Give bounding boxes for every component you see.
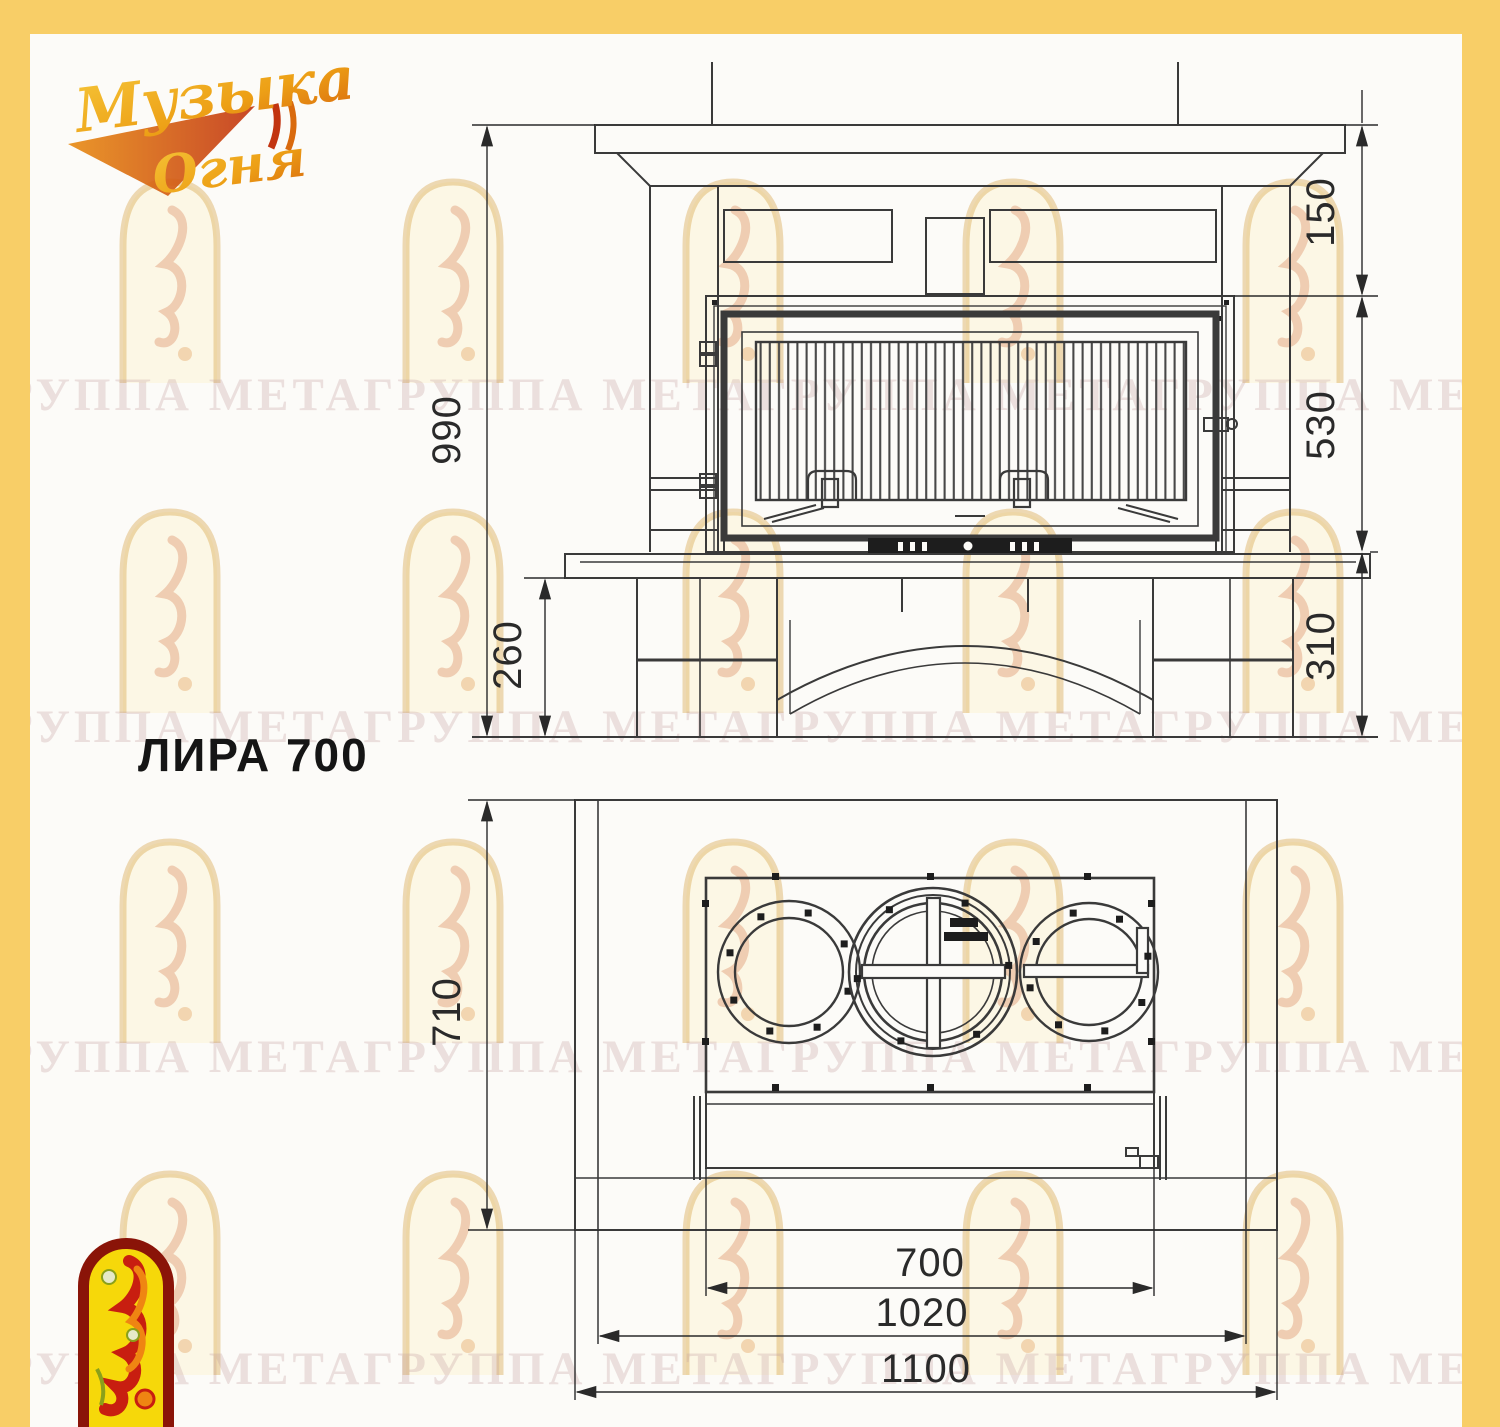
flue-bolt xyxy=(897,1037,904,1044)
flue-bolt xyxy=(727,949,734,956)
dim-total-width: 1100 xyxy=(881,1347,971,1391)
flue-bolt xyxy=(805,910,812,917)
flue-bolt xyxy=(814,1024,821,1031)
firebox-door xyxy=(724,314,1216,538)
flue-bolt xyxy=(1027,984,1034,991)
dim-depth: 710 xyxy=(425,977,469,1047)
flue-bolt xyxy=(973,1031,980,1038)
flue-bolt xyxy=(1116,916,1123,923)
base-legs-arch xyxy=(637,578,1293,737)
page-border-left xyxy=(0,0,30,1427)
plan-dimensions xyxy=(468,800,1277,1400)
flue-bolt xyxy=(766,1028,773,1035)
frieze-panels xyxy=(724,210,1216,294)
dim-firebox-height: 530 xyxy=(1299,390,1343,460)
flue-bolt xyxy=(1033,938,1040,945)
door-latch xyxy=(1204,418,1237,431)
insert-front-strip xyxy=(694,1092,1166,1180)
chimney-lines xyxy=(712,62,1178,125)
dim-insert-width: 700 xyxy=(895,1241,965,1285)
page-border-right xyxy=(1462,0,1500,1427)
dim-plinth-height: 260 xyxy=(486,620,530,690)
damper-handle-bar xyxy=(1024,965,1148,977)
door-grille xyxy=(756,342,1186,500)
damper-handle-bend xyxy=(1137,928,1148,973)
flue-bolt xyxy=(1005,962,1012,969)
flue-circle-right xyxy=(1020,903,1158,1041)
flue-bolt xyxy=(886,906,893,913)
salamander-figure xyxy=(89,1249,163,1427)
dim-inner-width: 1020 xyxy=(876,1291,969,1335)
flue-bolt xyxy=(962,900,969,907)
plan-dimension-labels: 710 700 1020 1100 xyxy=(425,977,971,1391)
brand-logo: Музыка Огня xyxy=(50,44,350,229)
hearth-slab xyxy=(565,554,1370,578)
flue-circle-center xyxy=(849,888,1017,1056)
page-border-top xyxy=(0,0,1500,34)
dim-top-offset: 150 xyxy=(1299,177,1343,247)
flue-bolt xyxy=(1070,910,1077,917)
flue-bolt xyxy=(1055,1021,1062,1028)
flue-bolt xyxy=(1101,1027,1108,1034)
mantel-shelf xyxy=(595,125,1345,186)
dim-total-height: 990 xyxy=(425,395,469,465)
page: ГРУППА МЕТАГРУППА МЕТАГРУППА МЕТАГРУППА … xyxy=(0,0,1500,1427)
model-title: ЛИРА 700 xyxy=(138,728,369,782)
damper-cross-horizontal xyxy=(862,965,1005,978)
salamander-emblem xyxy=(78,1238,174,1427)
flue-bolt xyxy=(1144,953,1151,960)
flue-bolt xyxy=(1138,999,1145,1006)
front-view: 990 260 150 530 310 xyxy=(425,62,1378,737)
flue-bolt xyxy=(730,997,737,1004)
dim-base-height: 310 xyxy=(1299,611,1343,681)
plan-view: 710 700 1020 1100 xyxy=(425,800,1277,1400)
flue-bolt xyxy=(757,913,764,920)
flue-bolt xyxy=(854,975,861,982)
flue-circle-left xyxy=(718,901,860,1043)
flue-bolt xyxy=(841,940,848,947)
